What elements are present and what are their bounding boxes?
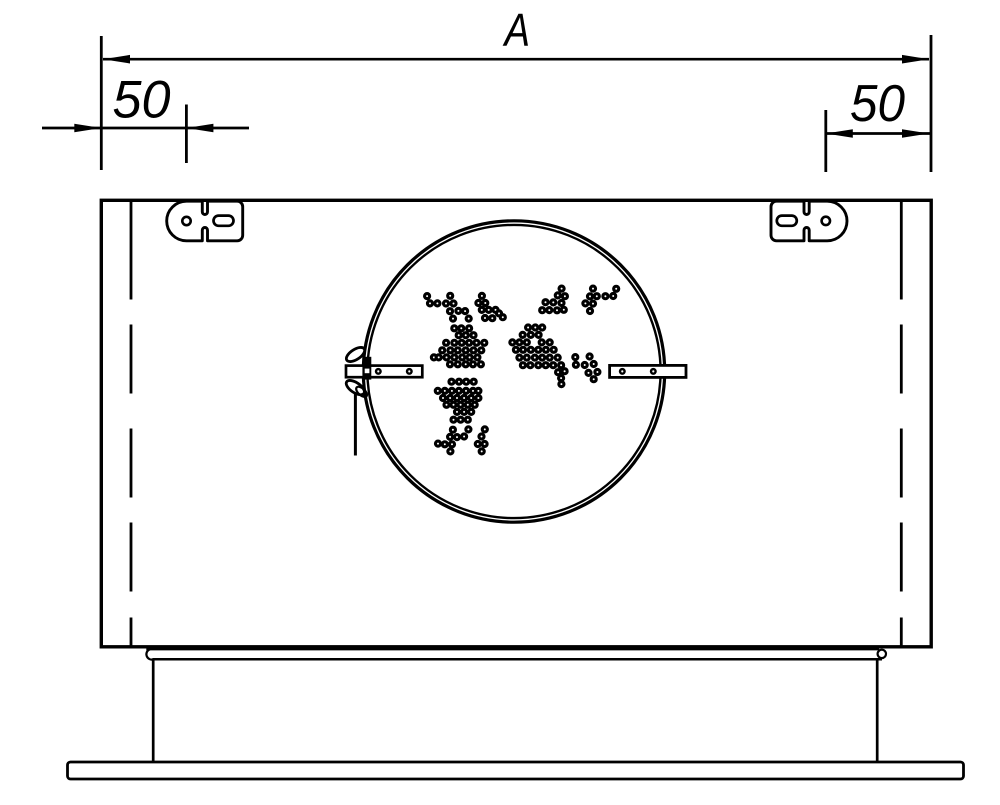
svg-text:50: 50 [850, 75, 905, 133]
svg-text:A: A [502, 4, 530, 56]
svg-text:50: 50 [113, 71, 172, 130]
